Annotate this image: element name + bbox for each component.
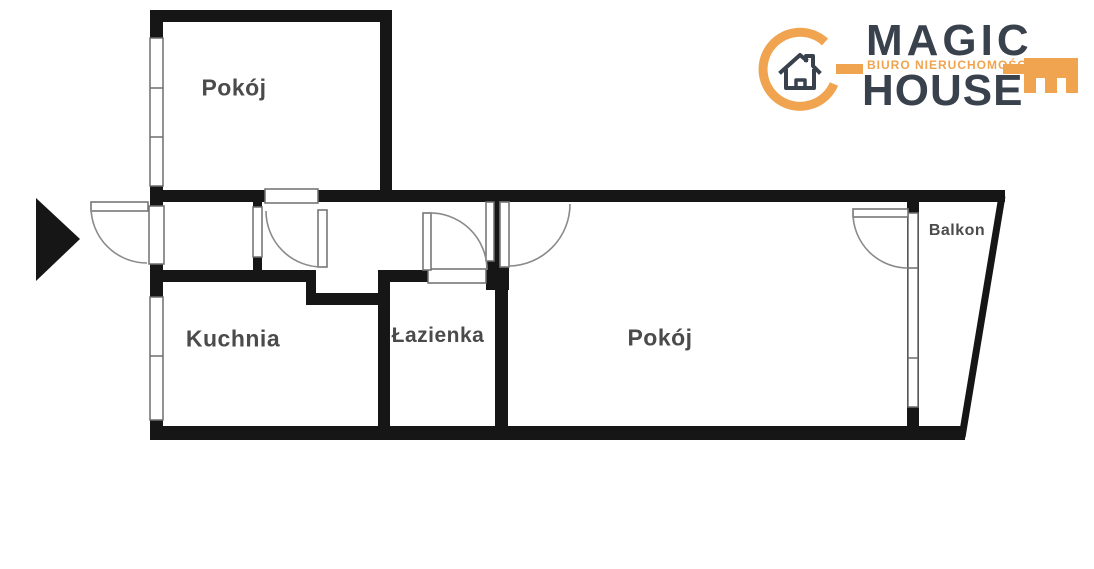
wall bbox=[150, 10, 392, 22]
wall bbox=[378, 270, 390, 428]
door-swing-arc bbox=[853, 213, 908, 268]
door-swing-arc bbox=[91, 207, 147, 263]
walls-layer bbox=[150, 10, 1005, 440]
door-leaf-room-top bbox=[318, 210, 327, 267]
floorplan-drawing bbox=[0, 0, 1094, 569]
entrance-opening bbox=[149, 206, 164, 264]
door-leaf-room-main bbox=[500, 202, 509, 267]
doors-layer bbox=[91, 202, 908, 270]
hallway-partition bbox=[253, 207, 262, 257]
wall bbox=[495, 282, 508, 428]
door-leaf-bathroom bbox=[423, 213, 431, 270]
window bbox=[150, 38, 163, 186]
wall bbox=[306, 270, 316, 305]
room-label-lazienka: Łazienka bbox=[392, 324, 485, 348]
door-threshold bbox=[265, 189, 318, 203]
door-swing-arc bbox=[427, 213, 487, 270]
room-label-balkon: Balkon bbox=[929, 222, 985, 240]
room-label-kuchnia: Kuchnia bbox=[186, 326, 280, 353]
balcony-window bbox=[908, 213, 918, 407]
door-leaf-balcony bbox=[853, 209, 908, 217]
door-swing-arc bbox=[266, 211, 322, 267]
wall bbox=[253, 256, 262, 282]
door-swing-arc bbox=[509, 204, 570, 266]
wall bbox=[150, 426, 965, 440]
room-label-pokoj-main: Pokój bbox=[627, 325, 692, 352]
door-threshold bbox=[428, 269, 486, 283]
room-label-pokoj-top: Pokój bbox=[201, 75, 266, 102]
door-leaf-entrance bbox=[91, 202, 148, 211]
entrance-arrow-icon bbox=[36, 198, 80, 281]
window bbox=[150, 297, 163, 420]
door-jamb bbox=[486, 202, 494, 261]
wall bbox=[162, 270, 316, 282]
wall bbox=[316, 293, 383, 305]
wall bbox=[380, 10, 392, 195]
floorplan-page: Pokój Kuchnia Łazienka Pokój Balkon MAGI… bbox=[0, 0, 1094, 569]
